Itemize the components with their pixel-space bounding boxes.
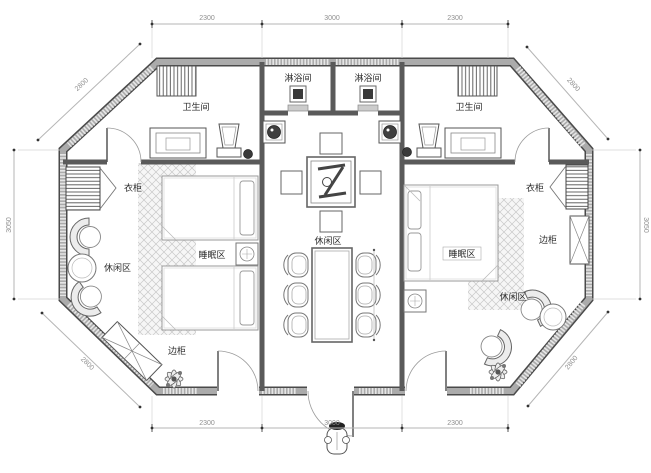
shower-mat-icon [288,105,308,111]
stool-icon [360,171,381,194]
wardrobe-left-label: 衣柜 [124,182,142,193]
vanity-icon [445,128,501,158]
pillow-icon [240,181,254,235]
shower-room-left: 淋浴间 [284,72,311,111]
nightstand-icon [236,243,258,265]
washbasin-right [379,121,401,143]
floor-plan-svg: 卫生间 卫生间 淋浴间 淋浴间 [0,0,651,473]
dining-chair-icon [356,313,380,337]
lounge-chair-icon [64,275,111,324]
stool-icon [320,211,342,232]
dim-bottom-2: 3000 [324,420,340,427]
leisure-hall-label: 休闲区 [314,235,341,246]
door-bathroom-left [107,128,141,162]
shower-left-label: 淋浴间 [284,72,311,83]
dim-right-label: 3050 [642,217,649,233]
dim-top-2: 3000 [324,15,340,22]
sleeping-right-label: 睡眠区 [448,248,475,259]
wardrobe-door-icon [100,168,116,209]
plant-icon [165,370,183,388]
pillow-icon [408,233,421,271]
bed-double [404,185,498,281]
bathroom-left: 卫生间 [150,66,253,159]
dim-bottom-3: 2300 [447,420,463,427]
dim-left-label: 3050 [6,217,13,233]
dining-table [312,248,352,342]
opening-entrance [307,386,354,397]
wardrobe-right-label: 衣柜 [526,182,544,193]
toilet-icon [217,124,241,157]
pillow-icon [408,191,421,229]
dim-top-3: 2300 [447,15,463,22]
dining-chair-icon [356,253,380,277]
shower-room-right: 淋浴间 [354,72,381,111]
wardrobe-icon [566,165,588,209]
opening-bedroom-right [405,386,447,397]
door-bedroom-left [218,351,258,391]
plant-icon [489,363,507,381]
central-hall: 休闲区 [281,133,381,454]
pillow-icon [240,271,254,325]
washbasin-left [263,121,285,143]
shower-drain-core [293,89,303,99]
dim-top: 2300 3000 2300 [151,15,510,28]
dim-bottom-1: 2300 [199,420,215,427]
dining-chair-icon [356,283,380,307]
bed-single-2 [162,266,258,330]
floor-plan-page: 卫生间 卫生间 淋浴间 淋浴间 [0,0,651,473]
basin-highlight [387,129,390,132]
wardrobe-icon [66,167,100,210]
dim-diag-br-label: 2800 [564,355,579,372]
basin-highlight [271,129,274,132]
basin-icon [384,126,397,139]
dining-chair-icon [284,313,308,337]
leisure-right-label: 休闲区 [499,291,526,302]
shower-mat-icon [358,105,378,111]
opening-bedroom-left [217,386,259,397]
side-cabinet-icon [570,216,589,264]
side-cabinet-right-label: 边柜 [539,234,557,245]
bathroom-left-label: 卫生间 [182,101,209,112]
leisure-left-label: 休闲区 [104,262,131,273]
door-bathroom-right [515,128,549,162]
shower-right-label: 淋浴间 [354,72,381,83]
door-bedroom-right [406,351,446,391]
dim-diag-bl-label: 2800 [79,356,95,372]
nightstand-icon [404,290,426,312]
basin-icon [268,126,281,139]
shelf-unit-icon [157,66,196,96]
dim-diag-tr-label: 2800 [565,77,581,93]
dining-chair-icon [284,253,308,277]
dim-left: 3050 [6,149,15,301]
bathroom-right: 卫生间 [403,66,502,158]
door-openings [217,386,447,397]
dim-right: 3050 [639,149,649,301]
side-cabinet-left-label: 边柜 [168,345,186,356]
stool-icon [281,171,302,194]
sleeping-left-label: 睡眠区 [198,249,225,260]
bedroom-right: 睡眠区 衣柜 边柜 休闲区 [404,165,589,381]
floor-drain-icon [403,148,412,157]
toilet-icon [417,124,441,157]
shower-drain-core [363,89,373,99]
bathroom-right-label: 卫生间 [455,101,482,112]
shelf-unit-icon [458,66,497,96]
lounge-chair-icon [70,218,101,256]
floor-drain-icon [244,150,253,159]
dining-chair-icon [284,283,308,307]
square-table [307,157,355,207]
dim-diag-tl-label: 2800 [74,77,90,93]
stool-icon [320,133,342,154]
vanity-icon [150,128,206,158]
dim-top-1: 2300 [199,15,215,22]
bed-single-1 [162,176,258,240]
wardrobe-door-icon [550,166,566,208]
